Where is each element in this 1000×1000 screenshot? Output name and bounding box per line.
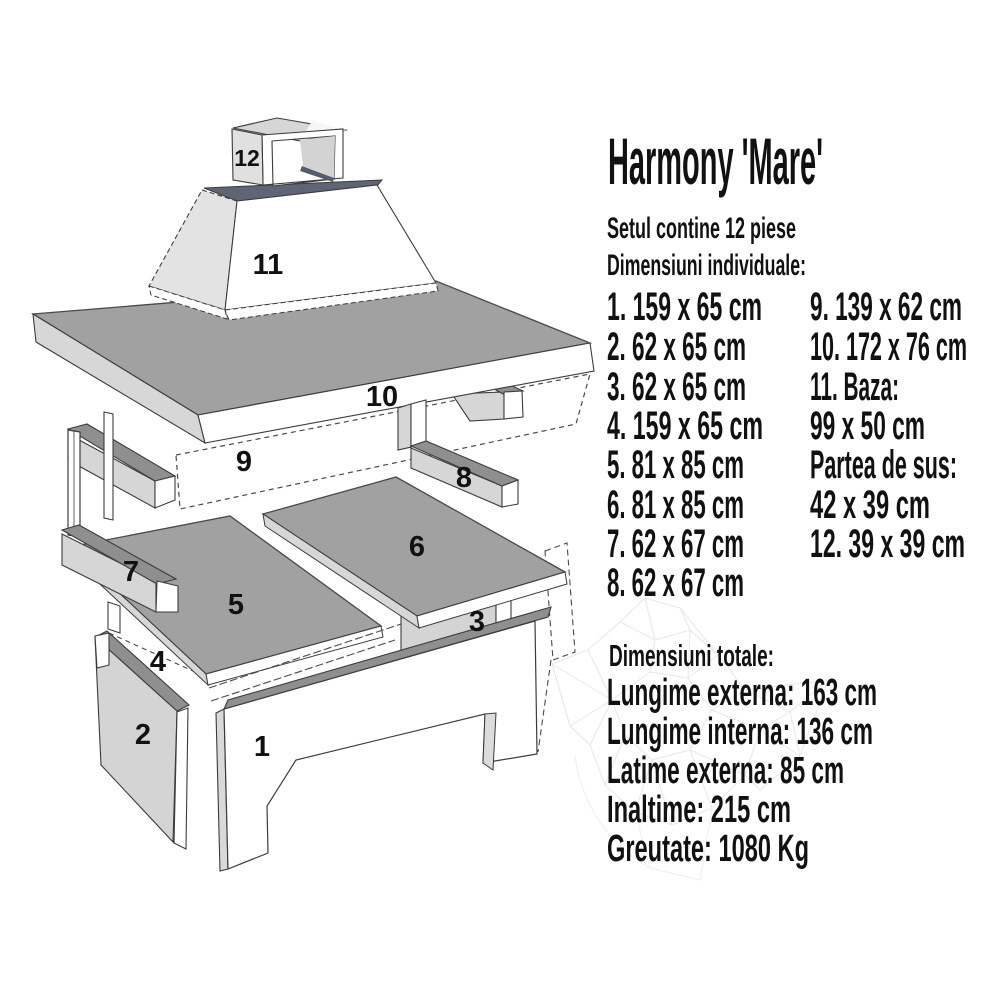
svg-text:9. 139 x 62 cm: 9. 139 x 62 cm: [810, 285, 962, 329]
svg-text:11: 11: [253, 249, 284, 281]
svg-text:8: 8: [456, 462, 472, 494]
svg-text:42 x 39 cm: 42 x 39 cm: [810, 483, 930, 527]
svg-text:6: 6: [409, 531, 425, 563]
svg-text:3. 62 x 65 cm: 3. 62 x 65 cm: [607, 365, 746, 409]
svg-text:2. 62 x 65 cm: 2. 62 x 65 cm: [607, 325, 746, 369]
svg-text:Dimensiuni individuale:: Dimensiuni individuale:: [607, 249, 806, 282]
svg-text:Harmony 'Mare': Harmony 'Mare': [608, 124, 823, 198]
svg-text:Latime externa: 85 cm: Latime externa: 85 cm: [607, 750, 844, 792]
svg-text:8. 62 x 67 cm: 8. 62 x 67 cm: [607, 561, 744, 605]
svg-text:Inaltime: 215 cm: Inaltime: 215 cm: [607, 789, 791, 831]
svg-text:12: 12: [234, 145, 260, 171]
svg-text:4: 4: [150, 646, 166, 678]
svg-text:Lungime externa: 163 cm: Lungime externa: 163 cm: [607, 672, 877, 714]
svg-text:2: 2: [135, 719, 151, 751]
svg-text:5. 81 x 85 cm: 5. 81 x 85 cm: [607, 443, 744, 487]
svg-text:12. 39 x 39 cm: 12. 39 x 39 cm: [810, 522, 965, 566]
svg-text:10. 172 x 76 cm: 10. 172 x 76 cm: [810, 325, 967, 369]
svg-text:4. 159 x 65 cm: 4. 159 x 65 cm: [607, 404, 763, 448]
svg-text:1. 159 x 65 cm: 1. 159 x 65 cm: [607, 285, 762, 329]
svg-text:9: 9: [236, 446, 252, 478]
svg-text:Lungime interna: 136 cm: Lungime interna: 136 cm: [607, 711, 873, 753]
svg-text:1: 1: [254, 731, 270, 763]
svg-text:7: 7: [123, 556, 139, 588]
svg-text:3: 3: [469, 606, 485, 638]
svg-text:6. 81 x 85 cm: 6. 81 x 85 cm: [607, 483, 744, 527]
svg-text:Partea de sus:: Partea de sus:: [810, 443, 957, 487]
svg-text:Setul contine 12 piese: Setul contine 12 piese: [607, 212, 796, 245]
svg-text:5: 5: [228, 589, 244, 621]
svg-text:99 x 50 cm: 99 x 50 cm: [810, 404, 925, 448]
svg-text:10: 10: [366, 381, 398, 413]
svg-text:Dimensiuni totale:: Dimensiuni totale:: [609, 638, 774, 673]
svg-text:Greutate: 1080 Kg: Greutate: 1080 Kg: [607, 828, 809, 870]
svg-text:7. 62 x 67 cm: 7. 62 x 67 cm: [607, 522, 744, 566]
svg-text:11. Baza:: 11. Baza:: [810, 365, 899, 409]
